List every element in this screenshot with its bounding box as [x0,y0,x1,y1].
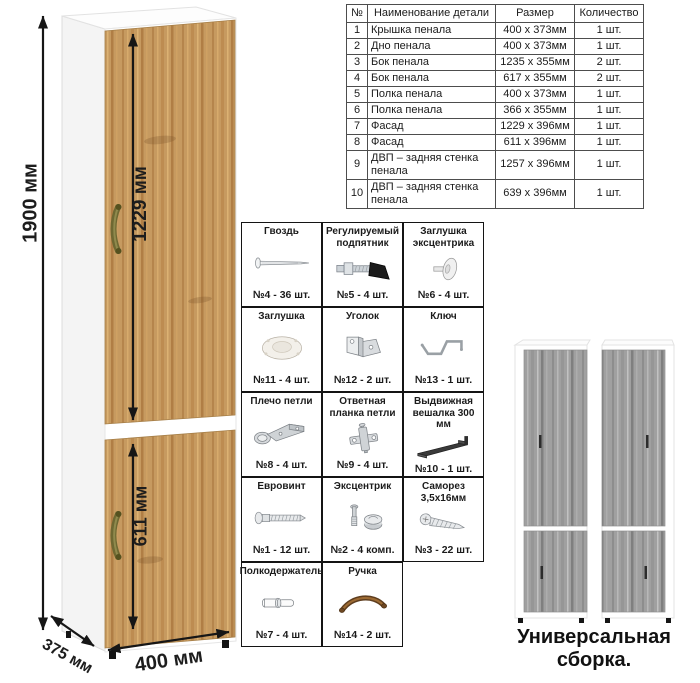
cabinet-illustration [0,0,250,683]
hardware-item-icon [324,493,401,545]
dimension-upper-door-label: 1229 мм [130,166,152,242]
hardware-item-icon [324,578,401,630]
hinge-plate-icon [327,423,399,455]
hardware-item-title: Ответная планка петли [324,396,401,419]
parts-table-header-cell: № [347,5,368,23]
parts-table: №Наименование деталиРазмерКоличество 1 К… [346,4,644,209]
parts-table-header-cell: Количество [575,5,644,23]
part-name-cell: Крышка пенала [368,23,496,39]
part-qty-cell: 1 шт. [575,119,644,135]
hardware-item-icon [405,431,482,463]
hardware-item-icon [243,408,320,460]
part-size-cell: 639 х 396мм [496,179,575,208]
assembled-variants-caption: Универсальная сборка. [488,626,700,672]
corner-bracket-icon [327,332,399,364]
hardware-cell: Гвоздь №4 - 36 шт. [241,222,322,307]
parts-table-row: 5 Полка пенала 400 х 373мм 1 шт. [347,87,644,103]
part-qty-cell: 1 шт. [575,87,644,103]
hardware-item-title: Полкодержатель [240,566,324,578]
part-number-cell: 8 [347,135,368,151]
hardware-item-icon [324,419,401,459]
dimension-lower-door-label: 611 мм [131,486,152,547]
part-qty-cell: 1 шт. [575,23,644,39]
assembled-cabinet-right [602,340,674,623]
hardware-item-count: №8 - 4 шт. [256,459,308,471]
hardware-item-count: №11 - 4 шт. [253,374,310,386]
part-name-cell: ДВП – задняя стенка пенала [368,179,496,208]
assembled-left-upper-door [524,350,587,526]
parts-table-row: 4 Бок пенала 617 х 355мм 2 шт. [347,71,644,87]
dimension-height-label: 1900 мм [20,163,43,243]
hardware-item-title: Ручка [348,566,377,578]
part-qty-cell: 1 шт. [575,103,644,119]
cam-cap-icon [408,253,480,285]
parts-table-row: 2 Дно пенала 400 х 373мм 1 шт. [347,39,644,55]
cabinet-upper-door [105,20,235,424]
nail-icon [246,247,318,279]
parts-table-row: 6 Полка пенала 366 х 355мм 1 шт. [347,103,644,119]
hardware-item-count: №7 - 4 шт. [256,629,308,641]
part-number-cell: 5 [347,87,368,103]
part-number-cell: 6 [347,103,368,119]
part-size-cell: 1257 х 396мм [496,151,575,180]
assembled-variants-illustration [490,330,700,630]
hardware-cell: Евровинт №1 - 12 шт. [241,477,322,562]
hardware-cell: Ключ №13 - 1 шт. [403,307,484,392]
part-qty-cell: 1 шт. [575,179,644,208]
hardware-cell: Плечо петли №8 - 4 шт. [241,392,322,477]
hardware-item-icon [405,504,482,544]
part-name-cell: Полка пенала [368,87,496,103]
part-number-cell: 9 [347,151,368,180]
part-name-cell: Полка пенала [368,103,496,119]
cap-icon [246,332,318,364]
hardware-item-title: Заглушка [258,311,304,323]
hardware-item-icon [243,493,320,545]
part-number-cell: 3 [347,55,368,71]
adjustable-foot-icon [327,253,399,285]
hardware-item-count: №5 - 4 шт. [337,289,389,301]
part-qty-cell: 2 шт. [575,71,644,87]
pullout-hanger-icon [408,431,480,463]
assembled-left-lower-door [524,531,587,612]
hardware-cell: Эксцентрик №2 - 4 комп. [322,477,403,562]
parts-table-row: 9 ДВП – задняя стенка пенала 1257 х 396м… [347,151,644,180]
part-size-cell: 366 х 355мм [496,103,575,119]
part-size-cell: 617 х 355мм [496,71,575,87]
hardware-cell: Заглушка эксцентрика №6 - 4 шт. [403,222,484,307]
handle-icon [327,587,399,619]
hardware-item-count: №4 - 36 шт. [253,289,310,301]
parts-table-header-cell: Размер [496,5,575,23]
hardware-item-count: №9 - 4 шт. [337,459,389,471]
hex-key-icon [408,332,480,364]
parts-table-row: 7 Фасад 1229 х 396мм 1 шт. [347,119,644,135]
assembled-cabinet-left [515,340,590,623]
shelf-pin-icon [246,587,318,619]
hardware-item-count: №10 - 1 шт. [415,463,472,475]
part-name-cell: Дно пенала [368,39,496,55]
part-size-cell: 1229 х 396мм [496,119,575,135]
part-size-cell: 611 х 396мм [496,135,575,151]
part-size-cell: 400 х 373мм [496,39,575,55]
hinge-arm-icon [246,417,318,449]
hardware-item-title: Плечо петли [250,396,312,408]
hardware-item-title: Заглушка эксцентрика [405,226,482,249]
part-size-cell: 1235 х 355мм [496,55,575,71]
hardware-cell: Выдвижная вешалка 300 мм №10 - 1 шт. [403,392,484,477]
parts-table-row: 1 Крышка пенала 400 х 373мм 1 шт. [347,23,644,39]
hardware-item-title: Евровинт [257,481,305,493]
part-number-cell: 2 [347,39,368,55]
part-qty-cell: 1 шт. [575,151,644,180]
hardware-item-icon [405,249,482,289]
hardware-cell: Уголок №12 - 2 шт. [322,307,403,392]
hardware-item-count: №2 - 4 комп. [330,544,394,556]
part-name-cell: Бок пенала [368,55,496,71]
hardware-cell: Заглушка №11 - 4 шт. [241,307,322,392]
eccentric-cam-icon [327,502,399,534]
hardware-item-title: Выдвижная вешалка 300 мм [405,396,482,431]
part-number-cell: 1 [347,23,368,39]
hardware-item-count: №6 - 4 шт. [418,289,470,301]
part-name-cell: ДВП – задняя стенка пенала [368,151,496,180]
hardware-item-icon [243,238,320,290]
cabinet-side-panel [62,16,105,651]
parts-table-row: 3 Бок пенала 1235 х 355мм 2 шт. [347,55,644,71]
hardware-item-icon [243,323,320,375]
hardware-item-count: №14 - 2 шт. [334,629,391,641]
cabinet-body [62,7,236,659]
hardware-item-title: Саморез 3,5х16мм [405,481,482,504]
part-size-cell: 400 х 373мм [496,23,575,39]
hardware-item-icon [405,323,482,375]
hardware-cell: Ручка №14 - 2 шт. [322,562,403,647]
hardware-item-count: №12 - 2 шт. [334,374,391,386]
part-number-cell: 4 [347,71,368,87]
part-qty-cell: 2 шт. [575,55,644,71]
assembled-right-lower-door [602,531,665,612]
assembled-right-upper-door [602,350,665,526]
hardware-grid: Гвоздь №4 - 36 шт. Регулируемый подпятни… [241,222,484,647]
hardware-item-title: Эксцентрик [334,481,391,493]
hardware-item-count: №1 - 12 шт. [253,544,310,556]
assembly-instruction-sheet: 1900 мм 1229 мм 611 мм 400 мм 375 мм №На… [0,0,700,683]
part-qty-cell: 1 шт. [575,39,644,55]
hardware-cell: Саморез 3,5х16мм №3 - 22 шт. [403,477,484,562]
hardware-item-count: №13 - 1 шт. [415,374,472,386]
part-name-cell: Бок пенала [368,71,496,87]
part-number-cell: 10 [347,179,368,208]
parts-table-row: 8 Фасад 611 х 396мм 1 шт. [347,135,644,151]
confirmat-screw-icon [246,502,318,534]
part-size-cell: 400 х 373мм [496,87,575,103]
part-qty-cell: 1 шт. [575,135,644,151]
cabinet-lower-door [105,430,235,648]
part-name-cell: Фасад [368,135,496,151]
parts-table-header-row: №Наименование деталиРазмерКоличество [347,5,644,23]
part-name-cell: Фасад [368,119,496,135]
hardware-item-title: Уголок [346,311,379,323]
parts-table-header-cell: Наименование детали [368,5,496,23]
parts-table-row: 10 ДВП – задняя стенка пенала 639 х 396м… [347,179,644,208]
hardware-item-icon [324,323,401,375]
hardware-item-icon [243,578,320,630]
hardware-item-icon [324,249,401,289]
hardware-item-count: №3 - 22 шт. [415,544,472,556]
hardware-cell: Регулируемый подпятник №5 - 4 шт. [322,222,403,307]
hardware-item-title: Гвоздь [264,226,299,238]
hardware-item-title: Ключ [430,311,456,323]
hardware-cell: Ответная планка петли №9 - 4 шт. [322,392,403,477]
part-number-cell: 7 [347,119,368,135]
hardware-item-title: Регулируемый подпятник [324,226,401,249]
self-tapping-screw-icon [408,508,480,540]
hardware-cell: Полкодержатель №7 - 4 шт. [241,562,322,647]
